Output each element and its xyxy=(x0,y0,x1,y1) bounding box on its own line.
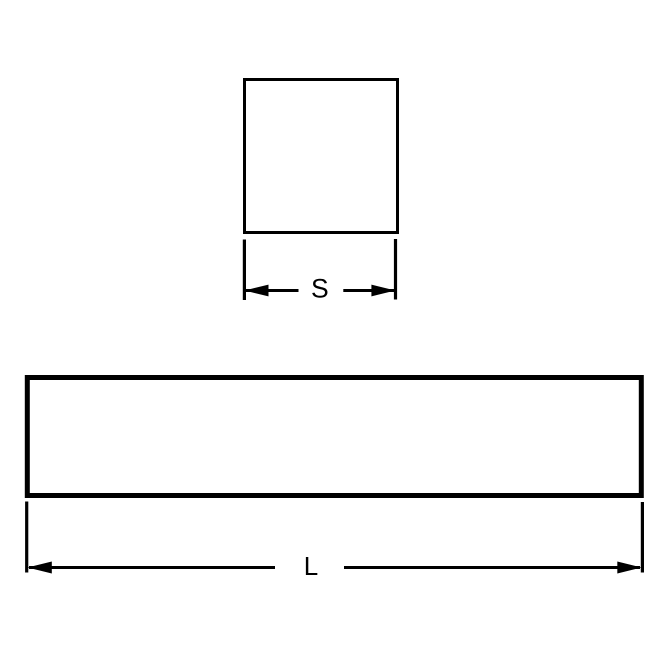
svg-text:L: L xyxy=(304,551,318,581)
svg-text:S: S xyxy=(311,274,329,304)
